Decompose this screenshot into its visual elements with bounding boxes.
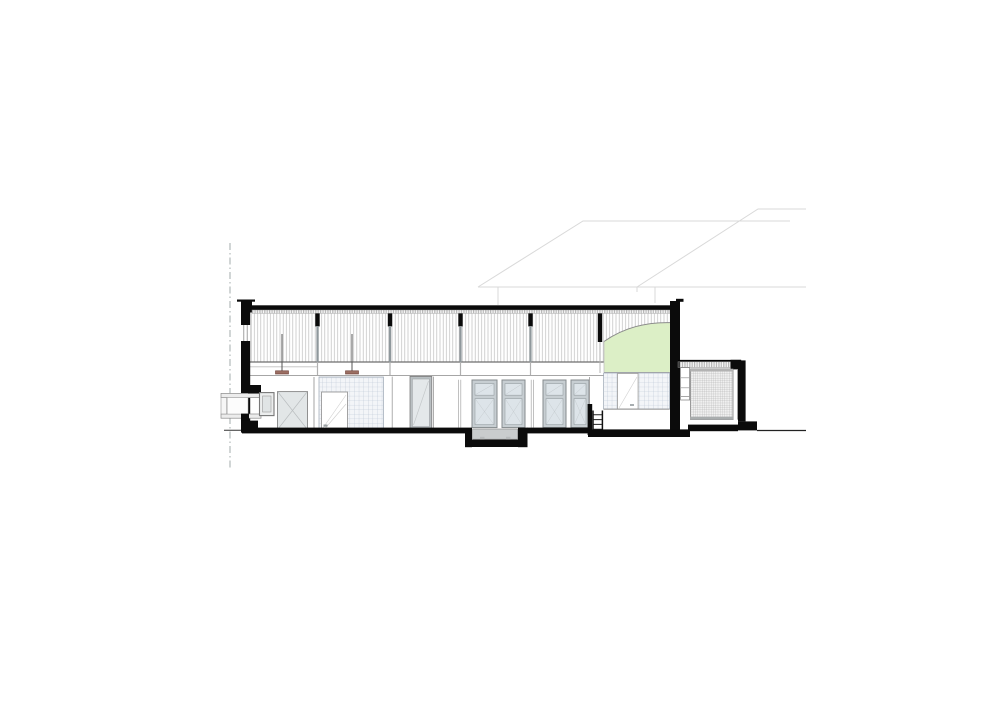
roof-assembly [237, 299, 684, 314]
roof-cap-right [676, 299, 684, 302]
background-roof-support-lines [498, 287, 655, 305]
partition-line [531, 380, 533, 428]
service-pit [465, 428, 528, 448]
hatch-window [260, 393, 275, 416]
casement-window [502, 380, 525, 428]
background-roof-outlines [478, 209, 806, 305]
partition-line [459, 380, 461, 428]
casement-window [543, 380, 566, 428]
annex-right-wall [738, 360, 746, 421]
main-building-section [221, 299, 690, 447]
tiled-wall-right [604, 373, 670, 409]
section-drawing [0, 0, 1000, 707]
annex-mesh-screen [691, 369, 733, 420]
casement-windows [472, 380, 589, 428]
tiled-wall-left-door [322, 392, 348, 430]
tall-door [410, 376, 432, 429]
double-door [278, 392, 308, 430]
pit-platform [473, 429, 518, 439]
background-roof-left [478, 221, 790, 287]
left-wall-window [241, 325, 250, 341]
annex-shelves [681, 368, 690, 400]
annex-roof-hatch [678, 362, 731, 368]
casement-window [472, 380, 497, 428]
section-drawing-canvas: Cross-section through a single-storey ha… [0, 0, 1000, 707]
tiled-wall-left [319, 377, 384, 430]
roof-deck-hatch [252, 310, 670, 313]
annex-right-wall-foot [738, 421, 757, 430]
annex-floor-slab [688, 425, 738, 432]
roof-slab [242, 305, 680, 310]
annex [678, 360, 757, 431]
footing-left [241, 421, 258, 433]
tiled-wall-right-door [618, 373, 639, 409]
casement-window [571, 380, 589, 428]
